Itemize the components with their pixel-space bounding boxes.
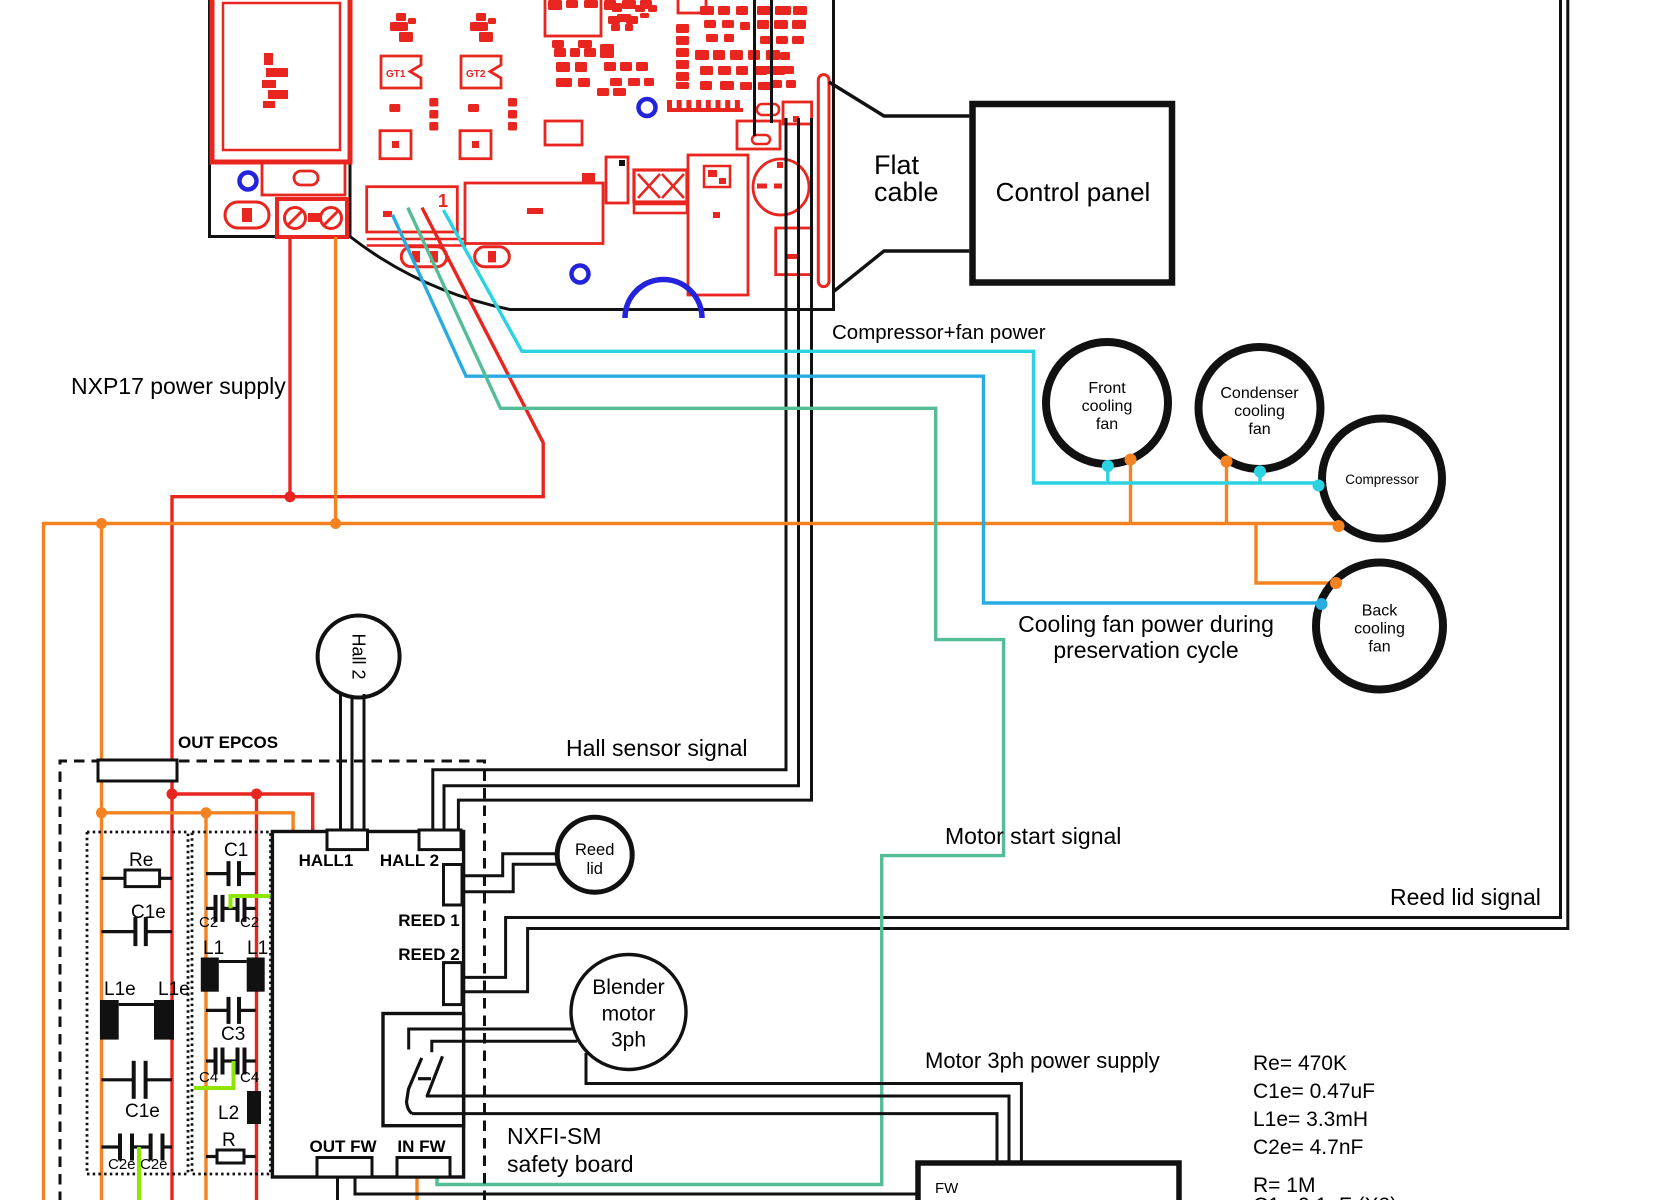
svg-text:cooling: cooling <box>1234 403 1285 420</box>
svg-text:motor: motor <box>602 1002 656 1025</box>
svg-text:Re: Re <box>129 850 153 871</box>
svg-text:1: 1 <box>438 191 448 211</box>
svg-text:HALL1: HALL1 <box>299 851 354 870</box>
svg-text:C1= 0.1uF (X2): C1= 0.1uF (X2) <box>1253 1194 1397 1200</box>
svg-text:Hall sensor signal: Hall sensor signal <box>566 735 748 761</box>
svg-text:3ph: 3ph <box>611 1029 646 1052</box>
svg-text:HALL 2: HALL 2 <box>380 851 439 870</box>
svg-text:cable: cable <box>874 177 939 207</box>
svg-text:C1: C1 <box>224 840 248 861</box>
svg-text:OUT EPCOS: OUT EPCOS <box>178 733 278 752</box>
svg-text:L1: L1 <box>203 938 224 959</box>
svg-text:GT1: GT1 <box>386 69 406 80</box>
svg-text:Front: Front <box>1088 380 1126 397</box>
svg-text:C1e: C1e <box>125 1101 160 1122</box>
svg-text:C2: C2 <box>199 914 218 931</box>
svg-text:L1: L1 <box>247 938 268 959</box>
svg-text:C2e= 4.7nF: C2e= 4.7nF <box>1253 1136 1363 1159</box>
svg-text:preservation cycle: preservation cycle <box>1053 637 1238 663</box>
svg-text:cooling: cooling <box>1082 398 1133 415</box>
svg-text:Re= 470K: Re= 470K <box>1253 1052 1347 1075</box>
svg-text:Hall 2: Hall 2 <box>349 633 369 679</box>
svg-text:IN FW: IN FW <box>397 1137 446 1156</box>
svg-text:C3: C3 <box>221 1024 245 1045</box>
svg-text:C1e= 0.47uF: C1e= 0.47uF <box>1253 1080 1375 1103</box>
svg-text:cooling: cooling <box>1354 621 1405 638</box>
svg-text:NXFI-SM: NXFI-SM <box>507 1123 602 1149</box>
svg-text:L2: L2 <box>218 1103 239 1124</box>
svg-text:fan: fan <box>1368 639 1390 656</box>
svg-text:safety board: safety board <box>507 1151 634 1177</box>
svg-text:Reed lid signal: Reed lid signal <box>1390 884 1541 910</box>
svg-text:NXP17 power supply: NXP17 power supply <box>71 373 286 399</box>
svg-text:C1e: C1e <box>131 902 166 923</box>
svg-text:Motor 3ph power supply: Motor 3ph power supply <box>925 1048 1160 1073</box>
svg-text:Compressor+fan power: Compressor+fan power <box>832 321 1046 344</box>
svg-text:GT2: GT2 <box>466 69 486 80</box>
svg-text:FW: FW <box>935 1180 959 1197</box>
svg-text:R: R <box>222 1130 236 1151</box>
svg-text:Blender: Blender <box>592 976 664 999</box>
svg-text:OUT FW: OUT FW <box>309 1137 377 1156</box>
svg-text:C4: C4 <box>199 1069 218 1086</box>
svg-text:L1e: L1e <box>158 979 190 1000</box>
svg-text:lid: lid <box>586 860 603 878</box>
svg-text:fan: fan <box>1096 416 1118 433</box>
svg-text:Back: Back <box>1362 603 1399 620</box>
svg-text:REED 2: REED 2 <box>398 945 459 964</box>
svg-text:Control panel: Control panel <box>996 177 1151 207</box>
svg-text:Reed: Reed <box>575 841 614 859</box>
svg-text:Condenser: Condenser <box>1220 385 1299 402</box>
svg-text:Flat: Flat <box>874 150 920 180</box>
svg-text:REED 1: REED 1 <box>398 911 459 930</box>
svg-text:C2: C2 <box>240 914 259 931</box>
svg-text:Compressor: Compressor <box>1345 472 1419 487</box>
svg-text:C4: C4 <box>240 1069 259 1086</box>
svg-text:L1e: L1e <box>104 979 136 1000</box>
svg-text:Motor start signal: Motor start signal <box>945 823 1121 849</box>
svg-text:C2e: C2e <box>108 1156 136 1173</box>
svg-text:Cooling fan power during: Cooling fan power during <box>1018 611 1274 637</box>
svg-text:fan: fan <box>1248 421 1270 438</box>
svg-text:L1e= 3.3mH: L1e= 3.3mH <box>1253 1108 1368 1131</box>
svg-text:C2e: C2e <box>140 1156 168 1173</box>
